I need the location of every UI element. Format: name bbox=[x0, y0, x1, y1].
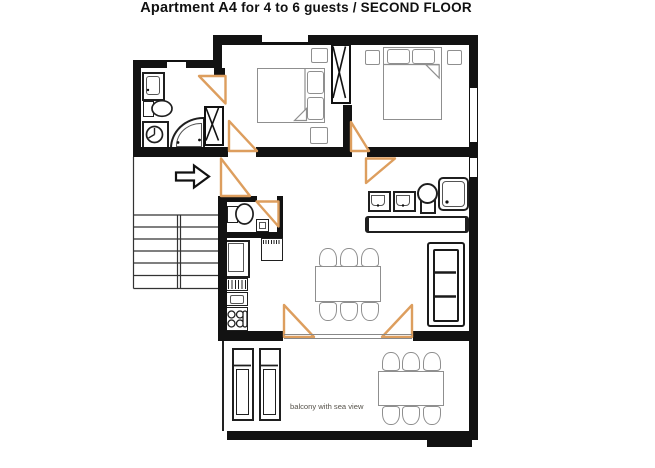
balcony-door-right bbox=[382, 305, 412, 337]
bedroom2-nightstand-right bbox=[447, 50, 462, 65]
apartment-details: for 4 to 6 guests / SECOND FLOOR bbox=[237, 0, 472, 15]
balcony-chair bbox=[402, 406, 420, 425]
wall-living-bottom-left bbox=[218, 331, 283, 341]
toilet-bowl bbox=[152, 101, 172, 117]
bedroom1-window bbox=[262, 35, 308, 42]
balcony-chair bbox=[402, 352, 420, 371]
wall-top bbox=[213, 35, 478, 45]
drainer-lines bbox=[228, 280, 246, 289]
balcony-threshold bbox=[284, 335, 412, 339]
stairs bbox=[134, 157, 219, 289]
wall-bathroom-right-stub bbox=[214, 68, 225, 77]
side-table-hatch bbox=[263, 240, 280, 245]
washing-machine bbox=[142, 121, 169, 150]
wc-toilet-bowl bbox=[236, 204, 253, 224]
balcony-table bbox=[378, 371, 444, 406]
hob-right-basin bbox=[396, 195, 410, 206]
dining-chair bbox=[340, 248, 358, 267]
kitchen-sink-left-basin bbox=[230, 295, 244, 305]
wall-hall-horizontal bbox=[133, 147, 228, 157]
hall-wardrobe bbox=[204, 106, 224, 146]
wall-bedroom-divider bbox=[343, 105, 352, 157]
wall-living-left bbox=[218, 197, 227, 331]
bathroom-door bbox=[199, 76, 226, 104]
toilet-tank bbox=[143, 101, 154, 117]
wall-under-bedroom2 bbox=[367, 147, 478, 157]
sofa-seats bbox=[433, 249, 459, 322]
bedroom2-pillow-right bbox=[412, 49, 436, 64]
kitchen-window bbox=[469, 158, 478, 177]
page-title: Apartment A4 for 4 to 6 guests / SECOND … bbox=[0, 0, 612, 16]
dining-chair bbox=[319, 248, 337, 267]
dining-table bbox=[315, 266, 381, 302]
stove bbox=[225, 307, 248, 331]
wall-under-bedroom1 bbox=[256, 147, 343, 157]
bedroom2-wardrobe bbox=[331, 44, 351, 104]
shower-tray-inner bbox=[442, 181, 465, 207]
wall-balcony-bottom bbox=[227, 431, 475, 440]
balcony-left-rail bbox=[222, 341, 224, 431]
balcony-label: balcony with sea view bbox=[290, 402, 400, 411]
entrance-arrow-icon bbox=[176, 166, 209, 188]
wall-living-bottom-right bbox=[413, 331, 478, 341]
bedroom1-door bbox=[229, 121, 257, 151]
balcony-chair bbox=[423, 406, 441, 425]
bathroom-window bbox=[167, 62, 186, 69]
kitchen-door bbox=[366, 159, 395, 184]
bedroom1-nightstand-top bbox=[311, 48, 328, 63]
bedroom1-window-sill bbox=[262, 42, 308, 44]
bathroom-sink-basin bbox=[146, 76, 160, 95]
bedroom1-pillow-bottom bbox=[307, 97, 324, 120]
hob-left-basin bbox=[371, 195, 385, 206]
floor-plan: Apartment A4 for 4 to 6 guests / SECOND … bbox=[0, 0, 655, 468]
bedroom1-pillow-top bbox=[307, 71, 324, 94]
sun-lounger-mat bbox=[263, 369, 276, 415]
bedroom1-nightstand-bottom bbox=[310, 127, 328, 144]
wall-bathroom-left bbox=[133, 60, 141, 155]
dining-chair bbox=[319, 302, 337, 321]
dining-chair bbox=[361, 248, 379, 267]
wc-toilet-tank bbox=[227, 206, 238, 223]
entrance-door bbox=[221, 159, 250, 197]
bedroom2-window bbox=[469, 88, 478, 142]
balcony-chair bbox=[423, 352, 441, 371]
sun-lounger-mat bbox=[236, 369, 249, 415]
wc-sink-basin bbox=[259, 222, 266, 229]
wall-wc-bottom bbox=[218, 232, 283, 238]
dining-chair bbox=[361, 302, 379, 321]
balcony-door-left bbox=[284, 305, 314, 337]
wall-wc-top bbox=[218, 196, 257, 202]
round-sink-bowl bbox=[417, 183, 438, 204]
kitchen-counter bbox=[365, 216, 469, 233]
fridge-inner bbox=[228, 243, 244, 272]
wall-balcony-step bbox=[427, 440, 472, 447]
dining-chair bbox=[340, 302, 358, 321]
bedroom2-nightstand-left bbox=[365, 50, 380, 65]
apartment-name: Apartment A4 bbox=[140, 0, 237, 16]
bedroom2-pillow-left bbox=[387, 49, 411, 64]
balcony-chair bbox=[382, 352, 400, 371]
bathroom-window-sill bbox=[167, 60, 186, 62]
